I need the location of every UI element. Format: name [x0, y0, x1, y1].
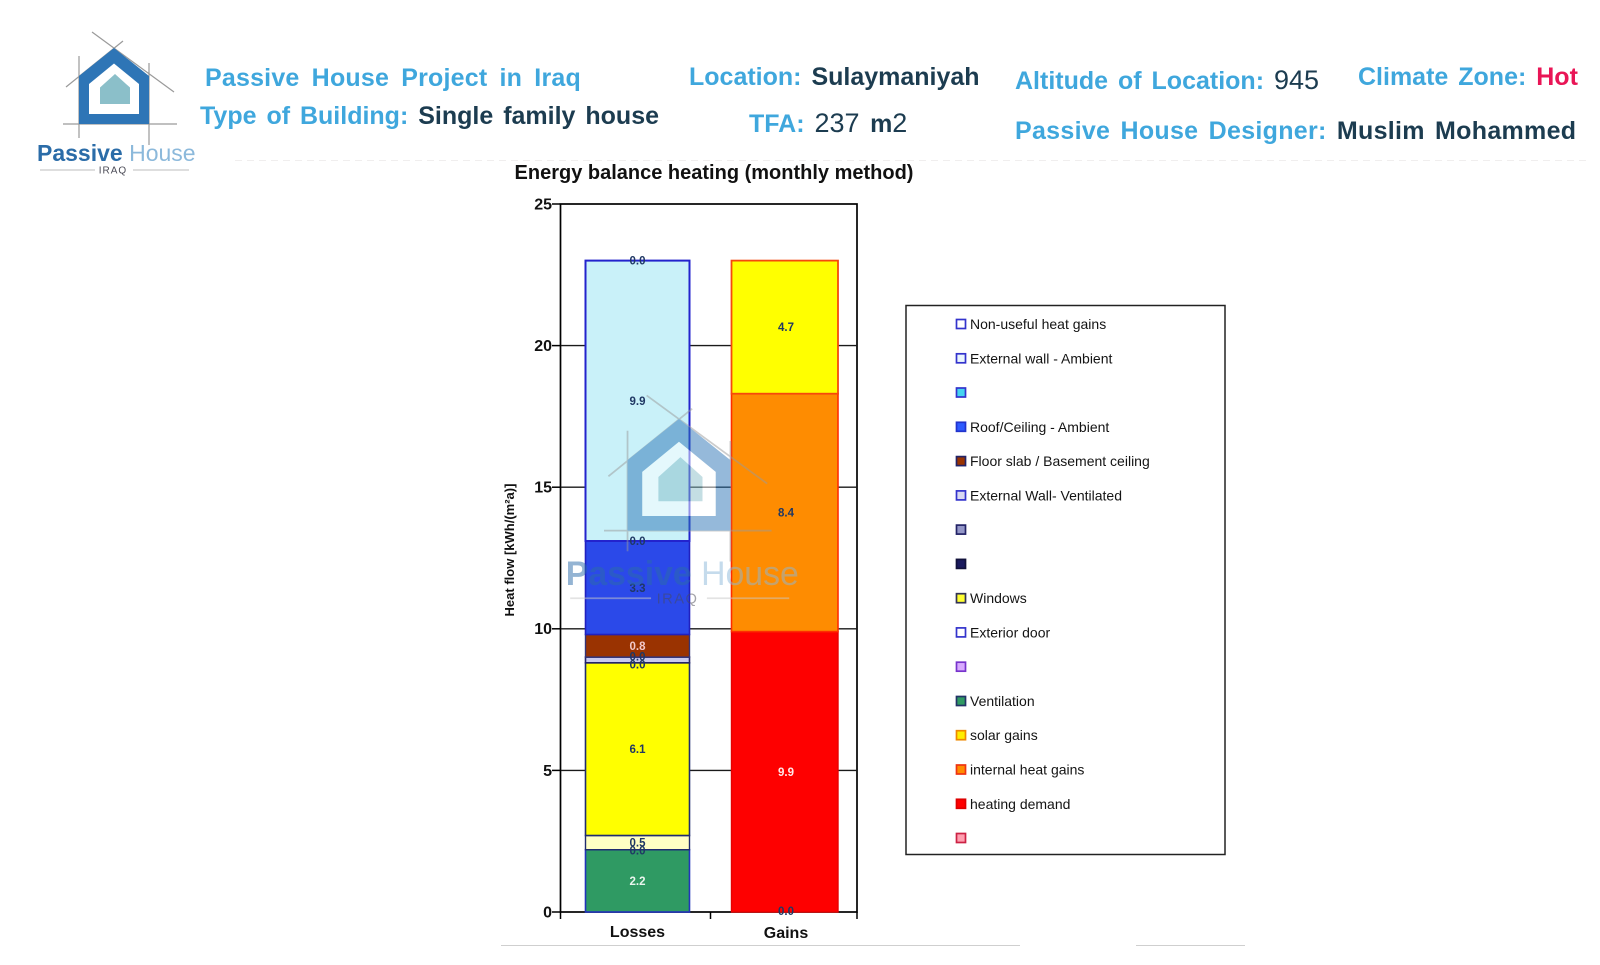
svg-text:2.2: 2.2	[630, 876, 646, 888]
svg-text:9.9: 9.9	[778, 767, 794, 779]
svg-text:5: 5	[543, 763, 552, 780]
svg-text:Exterior door: Exterior door	[970, 624, 1050, 640]
svg-text:heating demand: heating demand	[970, 796, 1070, 812]
svg-text:Windows: Windows	[970, 590, 1027, 606]
svg-text:0.0: 0.0	[630, 846, 646, 858]
svg-text:Roof/Ceiling - Ambient: Roof/Ceiling - Ambient	[970, 419, 1109, 435]
svg-text:0.0: 0.0	[630, 256, 646, 268]
svg-text:Energy balance heating (monthl: Energy balance heating (monthly method)	[515, 162, 914, 184]
svg-text:solar gains: solar gains	[970, 727, 1038, 743]
svg-text:6.1: 6.1	[630, 744, 647, 756]
svg-text:Gains: Gains	[764, 925, 809, 942]
svg-text:0: 0	[543, 905, 552, 922]
svg-text:0.0: 0.0	[778, 906, 794, 918]
svg-text:Losses: Losses	[610, 924, 665, 941]
svg-text:8.4: 8.4	[778, 508, 795, 520]
svg-text:20: 20	[534, 338, 552, 355]
svg-text:External wall - Ambient: External wall - Ambient	[970, 350, 1113, 366]
svg-text:9.9: 9.9	[630, 396, 646, 408]
svg-text:15: 15	[534, 480, 552, 497]
svg-text:Non-useful heat gains: Non-useful heat gains	[970, 316, 1106, 332]
svg-text:Floor slab / Basement ceiling: Floor slab / Basement ceiling	[970, 453, 1150, 469]
svg-text:Ventilation: Ventilation	[970, 693, 1035, 709]
svg-text:10: 10	[534, 621, 552, 638]
svg-text:4.7: 4.7	[778, 322, 794, 334]
svg-text:Heat flow [kWh/(m²a)]: Heat flow [kWh/(m²a)]	[502, 484, 517, 617]
svg-text:0.0: 0.0	[630, 536, 646, 548]
svg-text:25: 25	[534, 197, 552, 214]
svg-text:internal heat gains: internal heat gains	[970, 762, 1084, 778]
svg-text:External Wall- Ventilated: External Wall- Ventilated	[970, 487, 1122, 503]
svg-text:0.0: 0.0	[630, 660, 646, 672]
